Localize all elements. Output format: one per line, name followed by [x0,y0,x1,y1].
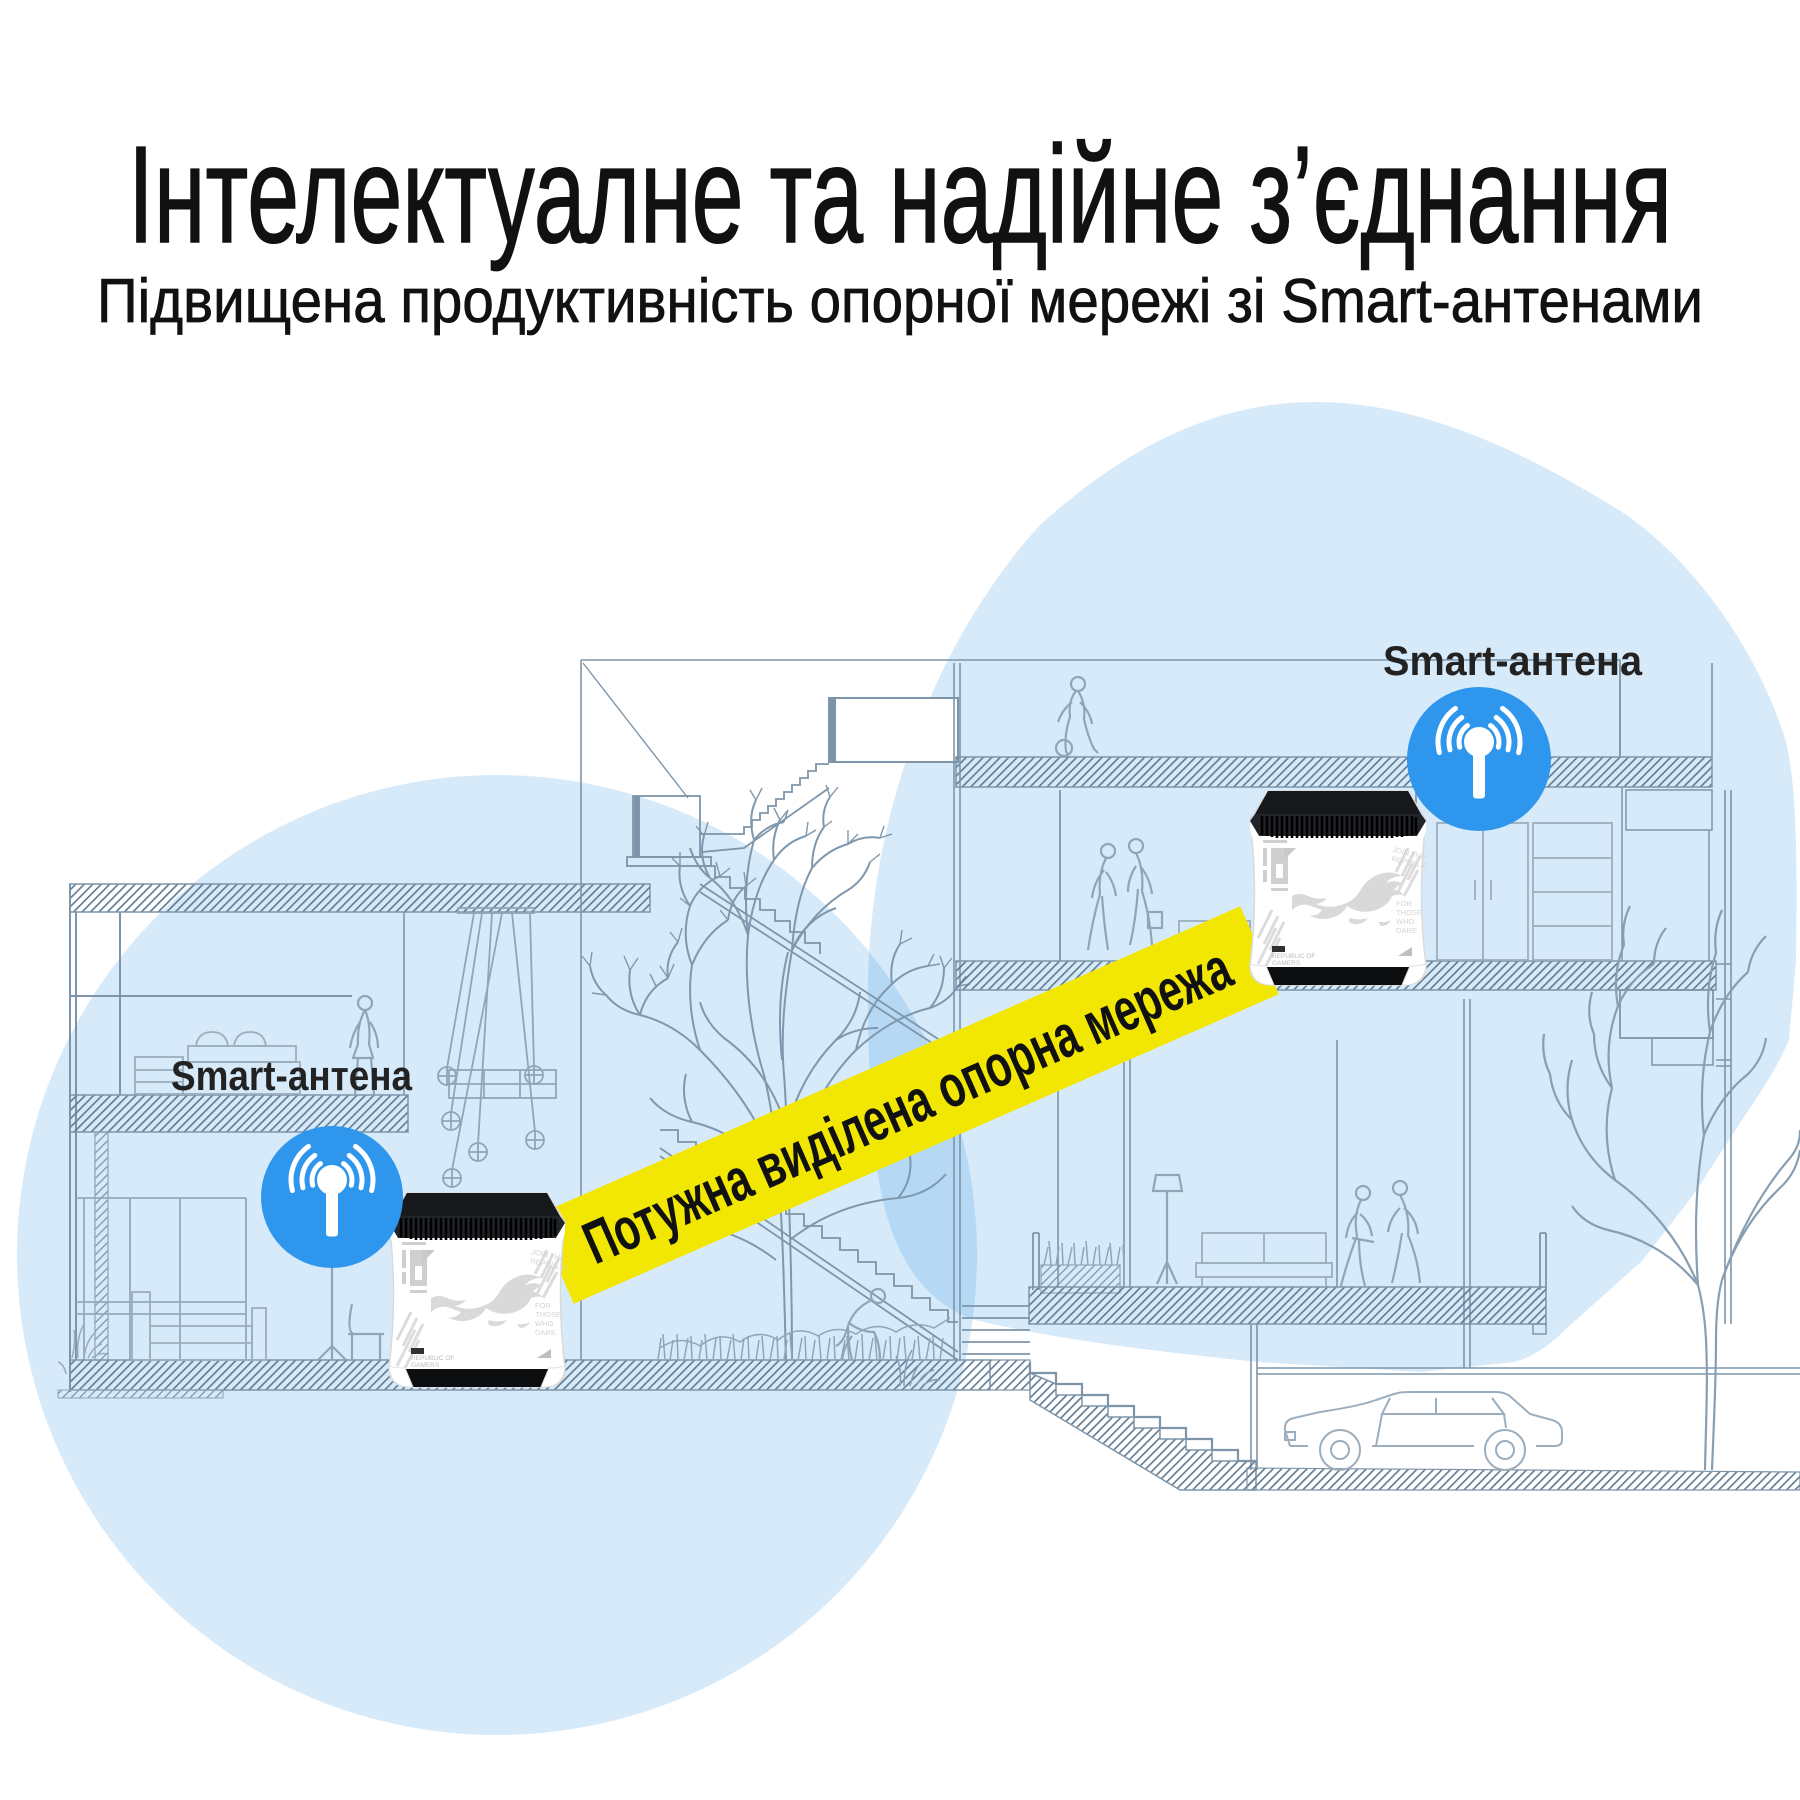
svg-text:Інтелектуалне та надійне з’єдн: Інтелектуалне та надійне з’єднання [128,118,1672,272]
svg-text:Підвищена продуктивність опорн: Підвищена продуктивність опорної мережі … [97,267,1703,336]
svg-text:Smart-антена: Smart-антена [1383,637,1643,684]
svg-text:Smart-антена: Smart-антена [171,1052,413,1099]
